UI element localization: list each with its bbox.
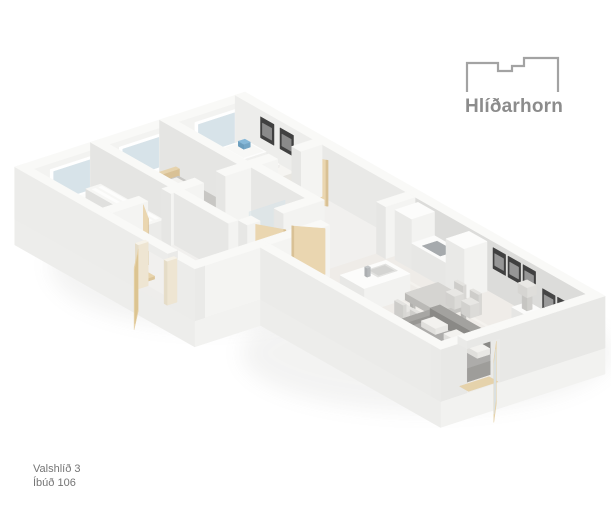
- brochure-page: Hlíðarhorn Valshlíð 3 Íbúð 106: [0, 0, 611, 524]
- caption-unit: Íbúð 106: [33, 476, 81, 490]
- caption-address: Valshlíð 3: [33, 462, 81, 476]
- building-outline-icon: [464, 54, 564, 94]
- logo: Hlíðarhorn: [439, 54, 589, 118]
- caption: Valshlíð 3 Íbúð 106: [33, 462, 81, 490]
- logo-text: Hlíðarhorn: [465, 96, 563, 118]
